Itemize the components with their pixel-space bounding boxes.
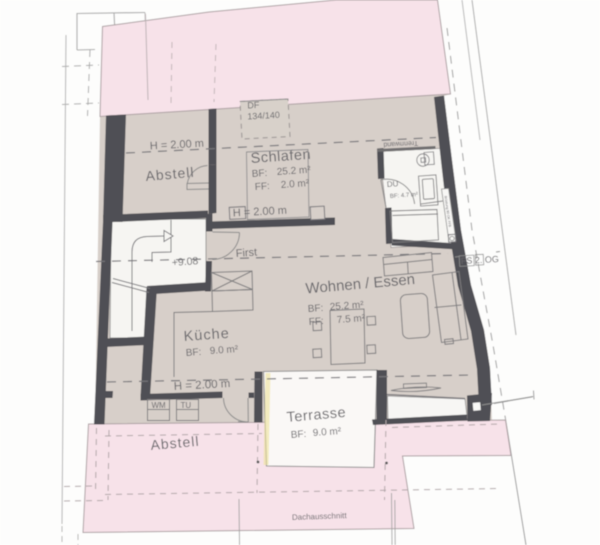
- svg-text:First: First: [235, 247, 257, 260]
- svg-text:BF:: BF:: [307, 303, 323, 315]
- svg-text:BF:: BF:: [185, 347, 201, 359]
- svg-text:DU: DU: [387, 179, 399, 189]
- svg-text:134/140: 134/140: [247, 110, 280, 122]
- svg-text:2.0 m²: 2.0 m²: [280, 178, 310, 191]
- svg-text:+9.08: +9.08: [171, 255, 199, 269]
- svg-text:BF:: BF:: [251, 168, 267, 180]
- svg-text:WM: WM: [152, 401, 167, 410]
- svg-text:BF:: BF:: [290, 429, 306, 441]
- svg-text:TU: TU: [181, 401, 192, 410]
- svg-text:FF:: FF:: [254, 181, 270, 193]
- svg-text:DF: DF: [247, 100, 260, 111]
- svg-text:9.0 m²: 9.0 m²: [312, 426, 342, 439]
- svg-text:7.5 m²: 7.5 m²: [336, 313, 366, 326]
- svg-text:9.0 m²: 9.0 m²: [209, 344, 239, 357]
- svg-text:FF:: FF:: [308, 316, 324, 328]
- svg-text:Küche: Küche: [183, 326, 230, 345]
